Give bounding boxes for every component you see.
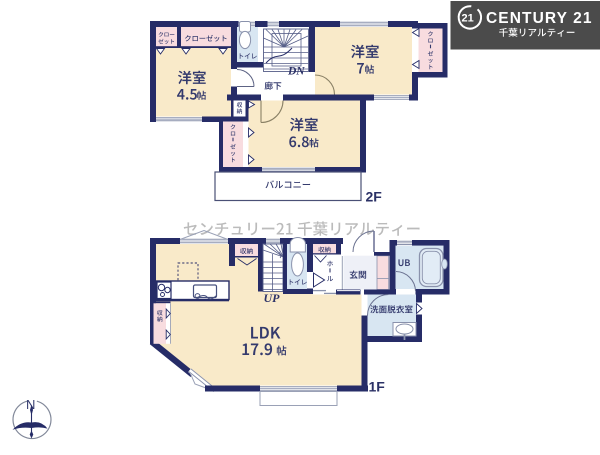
svg-text:DN: DN — [287, 66, 305, 78]
svg-text:CENTURY 21: CENTURY 21 — [486, 10, 593, 27]
svg-text:UP: UP — [264, 291, 281, 305]
svg-text:21: 21 — [462, 13, 474, 25]
svg-text:1F: 1F — [369, 379, 386, 395]
svg-text:2F: 2F — [366, 189, 383, 205]
